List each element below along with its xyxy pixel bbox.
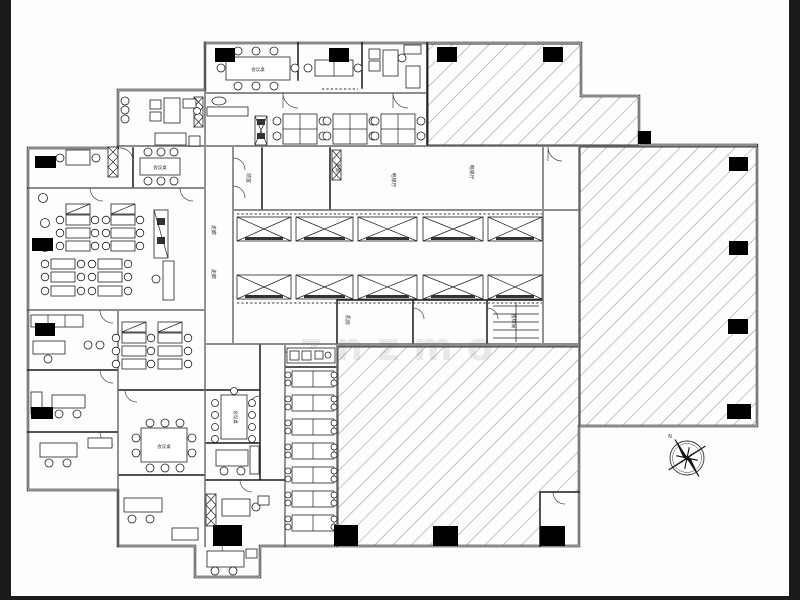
room-label-machine-room: 机房: [344, 315, 351, 325]
meeting-room-mid: 会议桌: [132, 419, 196, 472]
elevator-shaft: [358, 217, 417, 241]
office-top-3: [369, 45, 421, 88]
workstation-cluster: [371, 114, 425, 144]
room-label-corridor: 走廊: [210, 269, 217, 279]
office-bottom-left: [124, 498, 198, 540]
printer-cabinet: [154, 210, 168, 258]
elevator-shaft: [488, 275, 542, 299]
room-labels: 走廊 走廊 走廊 前室 电梯厅 电梯厅 机房 楼梯间: [210, 163, 517, 329]
office-upper-left-block: [121, 97, 201, 146]
workstation-cluster-mid: [112, 322, 192, 369]
meeting-table-label: 会议桌: [232, 410, 239, 424]
elevator-shaft: [423, 217, 483, 241]
room-label-front-room: 前室: [245, 173, 252, 183]
room-label-elevator-hall: 电梯厅: [468, 164, 475, 179]
meeting-table-label: 会议桌: [153, 164, 167, 171]
meeting-room-left: 会议桌: [140, 148, 180, 185]
floor-plan-canvas: znzmo: [0, 0, 800, 600]
office-bottom-center: [222, 496, 269, 516]
fire-elevator-shaft: [255, 116, 267, 145]
elevator-shaft: [237, 217, 291, 241]
elevator-shaft: [358, 275, 417, 299]
room-label-corridor: 走廊: [334, 163, 341, 173]
meeting-room-center: 会议桌: [212, 388, 256, 443]
office-left-1: [56, 150, 100, 165]
elevator-shaft: [423, 275, 483, 299]
bottom-frame-bar: [0, 596, 800, 600]
open-office-left: [39, 194, 175, 301]
elevator-shaft: [237, 275, 291, 299]
meeting-table-label: 会议桌: [251, 66, 265, 73]
hatched-area-right: [580, 147, 757, 426]
room-label-corridor: 走廊: [210, 225, 217, 235]
riser-shaft: [206, 494, 216, 526]
elevator-shaft: [488, 217, 542, 241]
workstation-cluster: [273, 114, 327, 144]
compass-rose: N: [668, 434, 705, 476]
exec-office-1: [31, 315, 104, 363]
right-frame-bar: [789, 0, 800, 600]
exec-office-3: [40, 438, 112, 467]
office-center-small: [216, 446, 259, 475]
room-label-stair: 楼梯间: [510, 313, 517, 328]
floor-plan-drawing: znzmo: [0, 0, 800, 600]
office-protrusion: [207, 549, 257, 575]
hatched-area-bottom: [338, 347, 579, 546]
hatched-area-top: [428, 44, 639, 145]
reception-counter: [207, 97, 248, 116]
workstation-cluster: [323, 114, 377, 144]
meeting-table-label: 会议桌: [157, 443, 171, 450]
room-label-elevator-hall: 电梯厅: [390, 172, 397, 187]
office-top-2: [304, 60, 362, 89]
elevator-bank-upper: [237, 214, 542, 241]
pantry-counter: [287, 348, 335, 363]
workstation-strip: [285, 371, 337, 531]
elevator-shaft: [296, 217, 353, 241]
elevator-bank-lower: [237, 275, 542, 303]
elevator-shaft: [296, 275, 353, 299]
left-frame-bar: [0, 0, 11, 600]
compass-north-label: N: [668, 434, 672, 440]
riser-shaft: [108, 147, 118, 177]
